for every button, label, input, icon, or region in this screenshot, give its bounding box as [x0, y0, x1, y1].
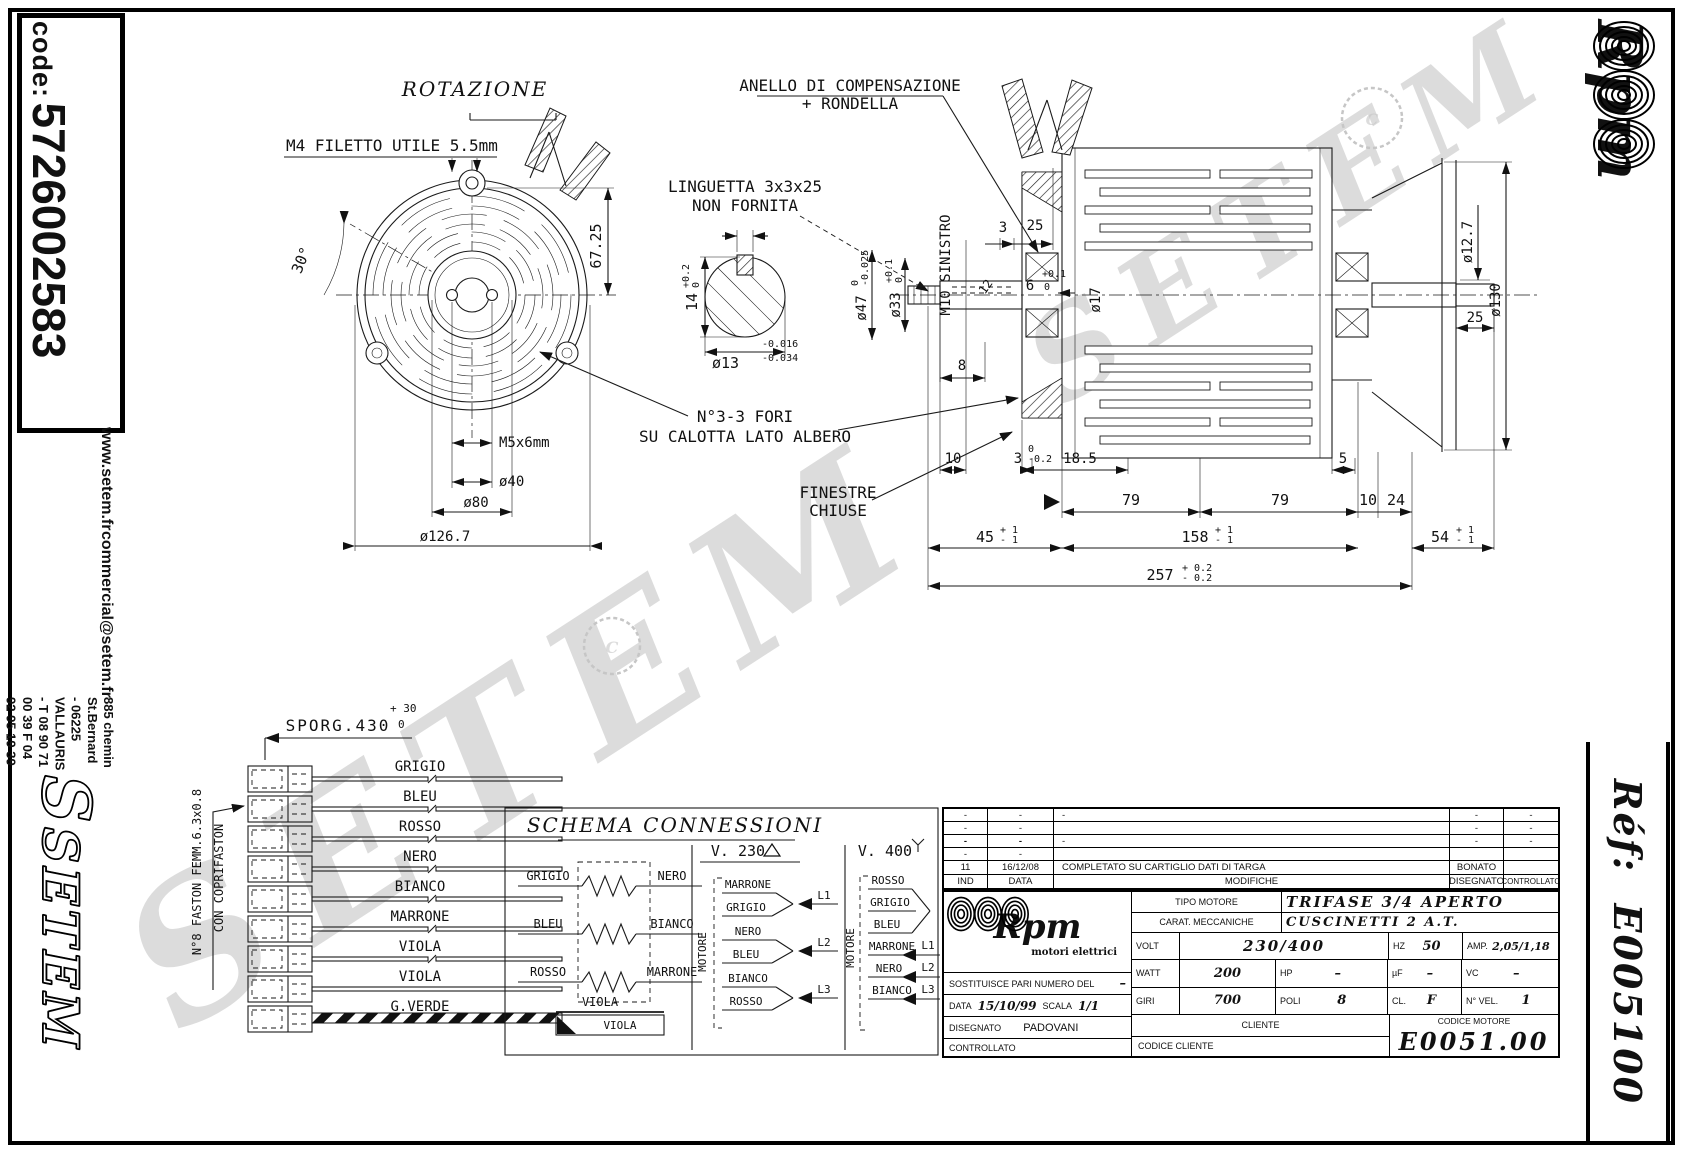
rpm-titleblock-logo: Rpm motori elettrici: [944, 892, 1131, 973]
revision-table: - - - - - - - - - - - - - - - - 11 16/12…: [942, 807, 1560, 890]
dia126-dim: ø126.7: [420, 529, 471, 545]
svg-text:ø17: ø17: [1088, 287, 1104, 312]
m5-hole: [487, 290, 498, 301]
svg-text:ø47: ø47: [854, 295, 870, 320]
key-depth: 14: [683, 293, 701, 311]
v230-group: MARRONE GRIGIO L1: [722, 878, 838, 916]
rev-header-data: DATA: [988, 875, 1054, 888]
rev-cell: -: [1450, 809, 1504, 822]
ref-block: Réf: E005100: [1586, 742, 1670, 1142]
codice-motore-value: E0051.00: [1390, 1027, 1558, 1056]
front-cables: [525, 108, 610, 200]
svg-text:VIOLA: VIOLA: [582, 995, 619, 1009]
rpm-subtitle: motori elettrici: [1031, 947, 1117, 958]
m4-note: M4 FILETTO UTILE 5.5mm: [286, 136, 498, 155]
data-value: 15/10/99: [978, 999, 1037, 1013]
tipo-motore-value: TRIFASE 3/4 APERTO: [1282, 892, 1508, 912]
svg-text:VIOLA: VIOLA: [399, 939, 442, 955]
ref-value: E005100: [1606, 904, 1651, 1106]
anello-note-2: + RONDELLA: [802, 94, 899, 113]
uf-label: µF: [1392, 968, 1403, 978]
svg-text:BIANCO: BIANCO: [650, 917, 693, 931]
finestre-note-1: FINESTRE: [799, 483, 876, 502]
rev-cell: -: [944, 809, 988, 822]
v230-title: V. 230: [711, 842, 765, 860]
sostituisce-value: –: [1120, 976, 1127, 991]
svg-text:79: 79: [1271, 491, 1289, 509]
svg-text:GRIGIO: GRIGIO: [526, 869, 569, 883]
uf-value: –: [1427, 966, 1434, 981]
rev-header-disegnato: DISEGNATO: [1450, 875, 1504, 888]
svg-text:BLEU: BLEU: [534, 917, 563, 931]
m5-hole: [447, 290, 458, 301]
rev-cell: [1054, 848, 1450, 861]
shaft-dia: ø13: [712, 354, 739, 372]
svg-text:BLEU: BLEU: [874, 918, 901, 931]
key-note-2: NON FORNITA: [692, 196, 798, 215]
amp-label: AMP.: [1467, 941, 1488, 951]
tipo-motore-label: TIPO MOTORE: [1132, 892, 1282, 912]
faston-note-2: CON COPRIFASTON: [212, 824, 226, 932]
watt-label: WATT: [1132, 960, 1180, 986]
svg-text:10: 10: [1359, 491, 1377, 509]
svg-text:ø33: ø33: [888, 292, 904, 317]
rev-cell: -: [988, 822, 1054, 835]
winding-row: BLEU BIANCO: [518, 917, 702, 944]
svg-text:BIANCO: BIANCO: [872, 984, 912, 997]
angle-dim: 30°: [288, 244, 315, 276]
svg-text:L2: L2: [921, 961, 934, 974]
watt-value: 200: [1180, 960, 1276, 986]
svg-text:- 1: - 1: [1000, 535, 1018, 546]
giri-value: 700: [1180, 988, 1276, 1014]
winding-row: GRIGIO NERO: [518, 869, 702, 896]
datum-marker: [1044, 494, 1060, 510]
contact-block: www.setem.fr commercial@setem.fr 885 che…: [20, 434, 116, 764]
carat-meccaniche-label: CARAT. MECCANICHE: [1132, 913, 1282, 933]
svg-text:BLEU: BLEU: [733, 948, 760, 961]
cliente-label: CLIENTE: [1132, 1015, 1389, 1037]
cl-value: F: [1427, 993, 1436, 1008]
code-value: 5726002583: [23, 102, 75, 358]
email-link[interactable]: commercial@setem.fr: [20, 531, 116, 698]
rev-cell: -: [944, 822, 988, 835]
svg-text:MARRONE: MARRONE: [725, 878, 771, 891]
hz-value: 50: [1422, 939, 1440, 954]
svg-text:54: 54: [1431, 528, 1449, 546]
rev-cell: [1054, 822, 1450, 835]
rev-cell: [1450, 848, 1504, 861]
sostituisce-label: SOSTITUISCE PARI NUMERO DEL: [949, 979, 1094, 989]
dia40-dim: ø40: [499, 474, 524, 490]
v400-line: NERO L2: [868, 961, 940, 983]
left-thread: M10 SINISTRO: [938, 214, 954, 315]
svg-text:+ 30: + 30: [390, 702, 417, 715]
svg-text:- 1: - 1: [1456, 535, 1474, 546]
fori-note-1: N°3-3 FORI: [697, 407, 793, 426]
setem-emblem-icon: S: [27, 775, 105, 823]
top-screw: [459, 170, 485, 196]
poli-value: 8: [1337, 993, 1346, 1008]
rev-author: BONATO: [1450, 861, 1504, 875]
rev-cell: -: [1054, 809, 1450, 822]
hp-label: HP: [1280, 968, 1293, 978]
key-note-1: LINGUETTA 3x3x25: [668, 177, 822, 196]
rpm-coils-icon: [944, 892, 1032, 936]
ref-label: Réf:: [1606, 779, 1651, 873]
rev-cell: -: [988, 848, 1054, 861]
svg-text:ø130: ø130: [1488, 283, 1504, 317]
v400-line: MARRONE L1: [868, 939, 940, 961]
svg-text:3: 3: [999, 220, 1007, 236]
svg-text:L1: L1: [921, 939, 934, 952]
motor-cables: [1002, 79, 1092, 158]
nvel-value: 1: [1522, 993, 1531, 1008]
svg-text:MARRONE: MARRONE: [390, 909, 449, 925]
svg-text:BIANCO: BIANCO: [728, 972, 768, 985]
code-label: code:: [27, 21, 57, 98]
rev-cell: -: [1504, 822, 1558, 835]
height-dim: 67.25: [587, 223, 605, 268]
title-block: Rpm motori elettrici SOSTITUISCE PARI NU…: [942, 890, 1560, 1058]
drawing-sheet: { "sheet": { "code_label": "code:", "cod…: [0, 0, 1683, 1153]
rev-header-ind: IND: [944, 875, 988, 888]
svg-text:ROSSO: ROSSO: [729, 995, 762, 1008]
svg-text:NERO: NERO: [658, 869, 687, 883]
copyright-icon: C: [606, 638, 619, 657]
svg-text:GRIGIO: GRIGIO: [726, 901, 766, 914]
svg-text:79: 79: [1122, 491, 1140, 509]
rev-cell: -: [944, 848, 988, 861]
svg-text:0: 0: [691, 282, 702, 288]
svg-text:NERO: NERO: [735, 925, 762, 938]
scala-value: 1/1: [1078, 999, 1099, 1013]
svg-text:MARRONE: MARRONE: [647, 965, 698, 979]
svg-text:45: 45: [976, 528, 994, 546]
rev-cell: [1504, 848, 1558, 861]
vc-label: VC: [1466, 968, 1479, 978]
svg-text:-0.034: -0.034: [762, 353, 798, 364]
rev-cell: [1504, 861, 1558, 875]
svg-text:MARRONE: MARRONE: [869, 940, 915, 953]
v230-group: NERO BLEU L2: [722, 925, 838, 963]
schema-title: SCHEMA CONNESSIONI: [527, 813, 823, 837]
setem-logo: S SETEM: [16, 775, 116, 1125]
rev-cell: -: [1450, 835, 1504, 848]
giri-label: GIRI: [1132, 988, 1180, 1014]
copyright-icon: C: [1366, 110, 1379, 129]
front-view: ROTAZIONE M4 FILETTO UTILE 5.5mm 30° 67.…: [284, 77, 616, 551]
rpm-coils-icon: [1584, 20, 1664, 170]
rev-header-controllato: CONTROLLATO: [1504, 875, 1558, 888]
svg-text:NERO: NERO: [876, 962, 903, 975]
poli-label: POLI: [1280, 996, 1301, 1006]
svg-text:0: 0: [894, 277, 905, 283]
svg-text:6: 6: [1026, 278, 1034, 294]
svg-text:8: 8: [958, 358, 966, 374]
svg-text:- 1: - 1: [1215, 535, 1233, 546]
svg-text:10: 10: [945, 451, 962, 467]
website-link[interactable]: www.setem.fr: [20, 427, 116, 530]
finestre-note-2: CHIUSE: [809, 501, 867, 520]
rev-header-modifiche: MODIFICHE: [1054, 875, 1450, 888]
svg-text:VIOLA: VIOLA: [399, 969, 442, 985]
sporg-dim: SPORG.430: [286, 716, 391, 735]
svg-text:257: 257: [1146, 566, 1173, 584]
fori-note-2: SU CALOTTA LATO ALBERO: [639, 427, 851, 446]
svg-text:ROSSO: ROSSO: [530, 965, 566, 979]
rotation-label: ROTAZIONE: [401, 77, 548, 101]
m5-dim: M5x6mm: [499, 435, 550, 451]
svg-text:MOTORE: MOTORE: [844, 928, 857, 968]
data-label: DATA: [949, 1001, 972, 1011]
svg-text:25: 25: [1467, 310, 1484, 326]
carat-meccaniche-value: CUSCINETTI 2 A.T.: [1282, 913, 1464, 933]
svg-text:G.VERDE: G.VERDE: [390, 999, 449, 1015]
svg-text:L1: L1: [817, 889, 830, 902]
v400-title: V. 400: [858, 842, 912, 860]
rev-cell: -: [988, 809, 1054, 822]
svg-text:ø12.7: ø12.7: [1460, 221, 1476, 263]
codice-motore-label: CODICE MOTORE: [1390, 1015, 1558, 1027]
winding-row: ROSSO MARRONE: [518, 965, 702, 992]
svg-text:12: 12: [976, 277, 996, 297]
svg-text:BLEU: BLEU: [403, 789, 437, 805]
dia80-dim: ø80: [463, 495, 488, 511]
svg-text:L2: L2: [817, 936, 830, 949]
svg-text:3: 3: [1014, 451, 1022, 467]
svg-text:+0.1: +0.1: [1042, 269, 1066, 280]
svg-text:GRIGIO: GRIGIO: [395, 759, 446, 775]
nvel-label: N° VEL.: [1466, 996, 1498, 1006]
rev-cell: -: [1450, 822, 1504, 835]
rev-cell: -: [944, 835, 988, 848]
faston-note-1: N°8 FASTON FEMM.6.3x0.8: [190, 789, 204, 955]
svg-text:-0.025: -0.025: [860, 250, 871, 286]
disegnato-label: DISEGNATO: [949, 1023, 1001, 1033]
svg-text:0: 0: [1044, 282, 1050, 293]
rev-date: 16/12/08: [988, 861, 1054, 875]
svg-text:158: 158: [1181, 528, 1208, 546]
svg-text:ROSSO: ROSSO: [871, 874, 904, 887]
svg-text:18.5: 18.5: [1063, 451, 1097, 467]
svg-text:- 0.2: - 0.2: [1182, 573, 1212, 584]
schema-connessioni: SCHEMA CONNESSIONI GRIGIO NERO BLEU BIAN…: [505, 808, 940, 1055]
volt-label: VOLT: [1132, 933, 1180, 959]
rev-index: 11: [944, 861, 988, 875]
controllato-label: CONTROLLATO: [949, 1043, 1016, 1053]
vc-value: –: [1513, 966, 1520, 981]
svg-text:0: 0: [398, 718, 405, 731]
delta-icon: [764, 844, 780, 856]
keyway: [737, 255, 753, 275]
rev-cell: -: [1504, 809, 1558, 822]
v230-group: BIANCO ROSSO L3: [722, 972, 838, 1010]
svg-text:-0.016: -0.016: [762, 339, 798, 350]
code-box: code: 5726002583: [17, 13, 125, 433]
rpm-logo-block: Rpm: [1576, 20, 1664, 340]
rev-cell: -: [1504, 835, 1558, 848]
svg-text:L3: L3: [817, 983, 830, 996]
thermal-protector: VIOLA VIOLA: [556, 995, 664, 1035]
svg-text:NERO: NERO: [403, 849, 437, 865]
v400-line: BIANCO L3: [868, 983, 940, 1005]
anello-note-1: ANELLO DI COMPENSAZIONE: [739, 76, 961, 95]
cl-label: CL.: [1392, 996, 1406, 1006]
svg-text:ROSSO: ROSSO: [399, 819, 441, 835]
svg-text:5: 5: [1339, 451, 1347, 467]
setem-wordmark: SETEM: [31, 827, 90, 1052]
svg-text:VIOLA: VIOLA: [603, 1019, 636, 1032]
volt-value: 230/400: [1180, 933, 1389, 959]
hz-label: HZ: [1393, 941, 1405, 951]
codice-cliente-label: CODICE CLIENTE: [1132, 1037, 1389, 1056]
amp-value: 2,05/1,18: [1492, 940, 1550, 953]
hp-value: –: [1335, 966, 1342, 981]
disegnato-value: PADOVANI: [1023, 1022, 1078, 1034]
svg-text:-0.2: -0.2: [1028, 454, 1052, 465]
svg-text:24: 24: [1387, 491, 1405, 509]
rev-cell: -: [988, 835, 1054, 848]
rev-cell: -: [1054, 835, 1450, 848]
svg-text:MOTORE: MOTORE: [696, 932, 709, 972]
star-icon: [912, 839, 924, 852]
postal-address: 885 chemin St.Bernard - 06225 VALLAURIS …: [20, 697, 116, 770]
v400-section: V. 400 MOTORE ROSSO GRIGIO BLEU MARRONE …: [844, 839, 940, 1030]
svg-text:L3: L3: [921, 983, 934, 996]
svg-text:BIANCO: BIANCO: [395, 879, 446, 895]
svg-text:GRIGIO: GRIGIO: [870, 896, 910, 909]
v230-section: V. 230 MOTORE MARRONE GRIGIO L1 NERO BLE…: [696, 842, 838, 1028]
rev-description: COMPLETATO SU CARTIGLIO DATI DI TARGA: [1054, 861, 1450, 875]
scala-label: SCALA: [1043, 1001, 1073, 1011]
svg-text:25: 25: [1027, 218, 1044, 234]
